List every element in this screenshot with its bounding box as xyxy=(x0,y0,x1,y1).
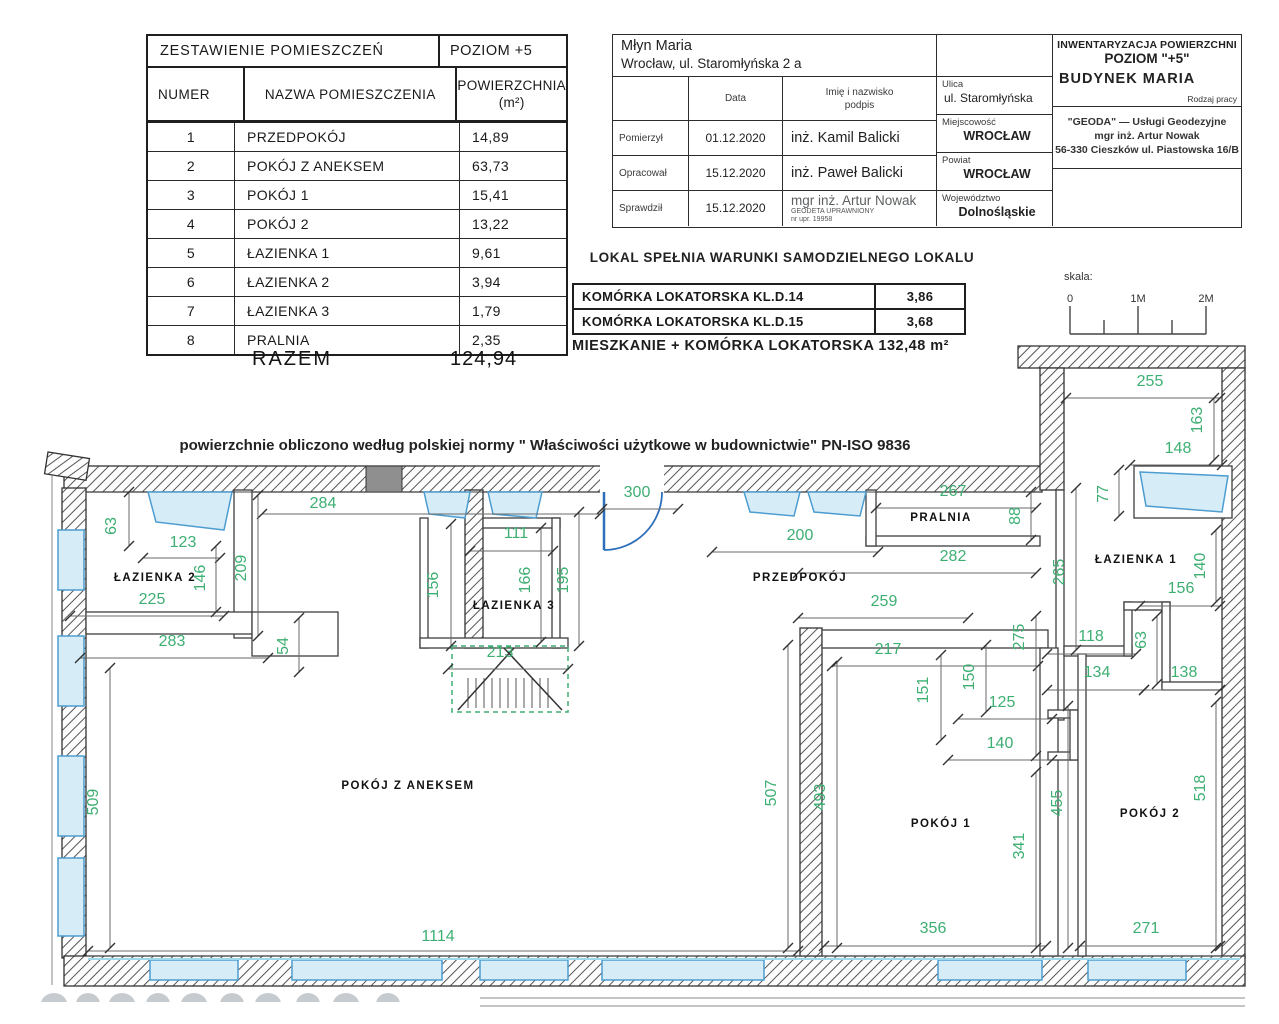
dimension-label: 455 xyxy=(1049,790,1066,817)
dimension-label: 54 xyxy=(275,637,292,655)
chimney-block xyxy=(366,466,402,492)
title-block-row: Opracował 15.12.2020 inż. Paweł Balicki xyxy=(613,156,937,191)
table-row: 3POKÓJ 115,41 xyxy=(148,181,566,210)
work-title-cell: INWENTARYZACJA POWIERZCHNI POZIOM "+5" B… xyxy=(1053,35,1241,107)
voivodeship-cell: Województwo Dolnośląskie xyxy=(937,191,1053,226)
dimension-label: 140 xyxy=(1192,553,1209,580)
dimension-label: 134 xyxy=(1084,664,1111,681)
window-icon xyxy=(480,960,568,980)
dimension-label: 209 xyxy=(233,555,250,582)
boundary-lines xyxy=(52,458,1245,1006)
room-label: PRALNIA xyxy=(910,512,972,524)
dimension-label: 255 xyxy=(1137,373,1164,390)
window-icon xyxy=(1140,472,1228,512)
door xyxy=(600,464,664,550)
room-label: POKÓJ Z ANEKSEM xyxy=(341,779,474,792)
total-value: 124,94 xyxy=(450,348,517,371)
apartment-total: MIESZKANIE + KOMÓRKA LOKATORSKA 132,48 m… xyxy=(572,338,949,354)
dimension-label: 156 xyxy=(1168,580,1195,597)
dimension-label: 195 xyxy=(555,567,572,594)
county-cell: Powiat WROCŁAW xyxy=(937,153,1053,191)
table-row: 7ŁAZIENKA 31,79 xyxy=(148,297,566,326)
inventory-title: INWENTARYZACJA POWIERZCHNI xyxy=(1053,39,1241,51)
column-header-name: NAZWA POMIESZCZENIA xyxy=(245,68,457,120)
table-row: KOMÓRKA LOKATORSKA KL.D.15 3,68 xyxy=(574,310,964,333)
window-icon xyxy=(58,756,84,836)
scale-bar: skala: 0 1M 2M xyxy=(1064,271,1214,334)
dimension-label: 63 xyxy=(1133,631,1150,649)
dimension-label: 493 xyxy=(812,784,829,811)
dimension-label: 225 xyxy=(139,591,166,608)
watermark-fragment xyxy=(36,988,466,1007)
scale-tick-label: 0 xyxy=(1067,293,1073,305)
person-header-cell: Imię i nazwisko podpis xyxy=(783,77,937,121)
street-cell: Ulica ul. Staromłyńska xyxy=(937,77,1053,115)
window-icon xyxy=(148,492,232,530)
room-table-level: POZIOM +5 xyxy=(438,36,566,66)
floor-plan-sheet: 2841232252831112133002672002822592171251… xyxy=(0,0,1279,1024)
dimension-label: 140 xyxy=(987,735,1014,752)
inventory-level: POZIOM "+5" xyxy=(1053,51,1241,66)
dimension-label: 63 xyxy=(103,517,120,535)
column-header-area: POWIERZCHNIA (m²) xyxy=(457,68,566,120)
window-icon xyxy=(938,960,1042,980)
column-header-number: NUMER xyxy=(148,68,245,120)
dimension-label: 283 xyxy=(159,633,186,650)
role-header-cell xyxy=(613,77,689,121)
dimension-label: 151 xyxy=(915,677,932,704)
date-header-cell: Data xyxy=(689,77,783,121)
dimension-label: 507 xyxy=(763,780,780,807)
window-icon xyxy=(1088,960,1186,980)
room-label: POKÓJ 1 xyxy=(911,817,971,830)
dimension-label: 156 xyxy=(425,572,442,599)
scale-tick-label: 2M xyxy=(1198,293,1213,305)
dimension-label: 88 xyxy=(1007,507,1024,525)
room-label: ŁAZIENKA 1 xyxy=(1095,554,1177,566)
room-label: ŁAZIENKA 3 xyxy=(473,600,555,612)
dimension-label: 509 xyxy=(85,789,102,816)
room-table: ZESTAWIENIE POMIESZCZEŃ POZIOM +5 NUMER … xyxy=(146,34,568,356)
dimension-label: 1114 xyxy=(421,928,454,945)
company-address: 56-330 Cieszków ul. Piastowska 16/B xyxy=(1053,143,1241,157)
title-block-row: Pomierzył 01.12.2020 inż. Kamil Balicki xyxy=(613,121,937,156)
norm-note: powierzchnie obliczono według polskiej n… xyxy=(130,437,960,454)
dimension-label: 125 xyxy=(989,694,1016,711)
dimension-label: 217 xyxy=(875,641,902,658)
dimension-label: 271 xyxy=(1133,920,1160,937)
dimension-label: 123 xyxy=(170,534,197,551)
project-name: Młyn Maria xyxy=(621,38,936,54)
company-cell: "GEODA" — Usługi Geodezyjne mgr inż. Art… xyxy=(1053,107,1241,169)
table-row: 4POKÓJ 213,22 xyxy=(148,210,566,239)
dimension-label: 118 xyxy=(1078,628,1104,645)
project-address: Wrocław, ul. Staromłyńska 2 a xyxy=(621,56,936,71)
empty-cell xyxy=(937,35,1053,77)
dimension-label: 282 xyxy=(940,548,967,565)
dimension-label: 138 xyxy=(1171,664,1198,681)
dimension-label: 150 xyxy=(961,664,978,691)
room-label: POKÓJ 2 xyxy=(1120,807,1180,820)
project-header: Młyn Maria Wrocław, ul. Staromłyńska 2 a xyxy=(613,35,937,77)
scale-bar-label: skala: xyxy=(1064,271,1093,283)
dimension-label: 148 xyxy=(1165,440,1192,457)
company-name: "GEODA" — Usługi Geodezyjne xyxy=(1053,115,1241,129)
room-table-body: 1PRZEDPOKÓJ14,89 2POKÓJ Z ANEKSEM63,73 3… xyxy=(148,123,566,354)
dimension-label: 166 xyxy=(517,567,534,594)
total-row: RAZEM 124,94 xyxy=(146,348,564,371)
self-contained-unit-statement: LOKAL SPEŁNIA WARUNKI SAMODZIELNEGO LOKA… xyxy=(568,250,996,265)
room-table-title: ZESTAWIENIE POMIESZCZEŃ xyxy=(148,43,438,59)
window-icon xyxy=(744,492,800,516)
dimension-label: 111 xyxy=(504,525,528,542)
table-row: 1PRZEDPOKÓJ14,89 xyxy=(148,123,566,152)
dimension-label: 163 xyxy=(1189,407,1206,434)
table-row: 5ŁAZIENKA 19,61 xyxy=(148,239,566,268)
window-icon xyxy=(58,858,84,936)
window-icon xyxy=(602,960,764,980)
dimension-label: 77 xyxy=(1095,485,1112,503)
dimension-label: 213 xyxy=(487,644,514,661)
empty-cell xyxy=(1053,169,1241,226)
window-icon xyxy=(808,492,866,516)
title-block-row: Sprawdził 15.12.2020 mgr inż. Artur Nowa… xyxy=(613,191,937,226)
window-icon xyxy=(150,960,238,980)
city-cell: Miejscowość WROCŁAW xyxy=(937,115,1053,153)
dimension-label: 300 xyxy=(624,484,651,501)
dimension-label: 267 xyxy=(940,483,967,500)
window-icon xyxy=(292,960,442,980)
company-person: mgr inż. Artur Nowak xyxy=(1053,129,1241,143)
building-name: BUDYNEK MARIA xyxy=(1059,71,1195,87)
dimension-label: 265 xyxy=(1051,559,1068,586)
table-row: KOMÓRKA LOKATORSKA KL.D.14 3,86 xyxy=(574,285,964,310)
storage-table: KOMÓRKA LOKATORSKA KL.D.14 3,86 KOMÓRKA … xyxy=(572,283,966,335)
window-icon xyxy=(58,636,84,706)
dimension-label: 200 xyxy=(787,527,814,544)
dimension-label: 341 xyxy=(1011,833,1028,860)
table-row: 6ŁAZIENKA 23,94 xyxy=(148,268,566,297)
window-icon xyxy=(58,530,84,590)
table-row: 2POKÓJ Z ANEKSEM63,73 xyxy=(148,152,566,181)
total-label: RAZEM xyxy=(252,348,332,371)
dimension-label: 275 xyxy=(1011,624,1028,651)
room-label: PRZEDPOKÓJ xyxy=(753,571,847,584)
scale-tick-label: 1M xyxy=(1130,293,1145,305)
dimension-label: 356 xyxy=(920,920,947,937)
dimension-label: 259 xyxy=(871,593,898,610)
scale-bar-ticks xyxy=(1070,306,1206,334)
dimension-label: 284 xyxy=(310,495,337,512)
work-type-label: Rodzaj pracy xyxy=(1187,94,1237,104)
title-block: Młyn Maria Wrocław, ul. Staromłyńska 2 a… xyxy=(612,34,1242,228)
dimension-label: 518 xyxy=(1192,775,1209,802)
room-label: ŁAZIENKA 2 xyxy=(114,572,196,584)
